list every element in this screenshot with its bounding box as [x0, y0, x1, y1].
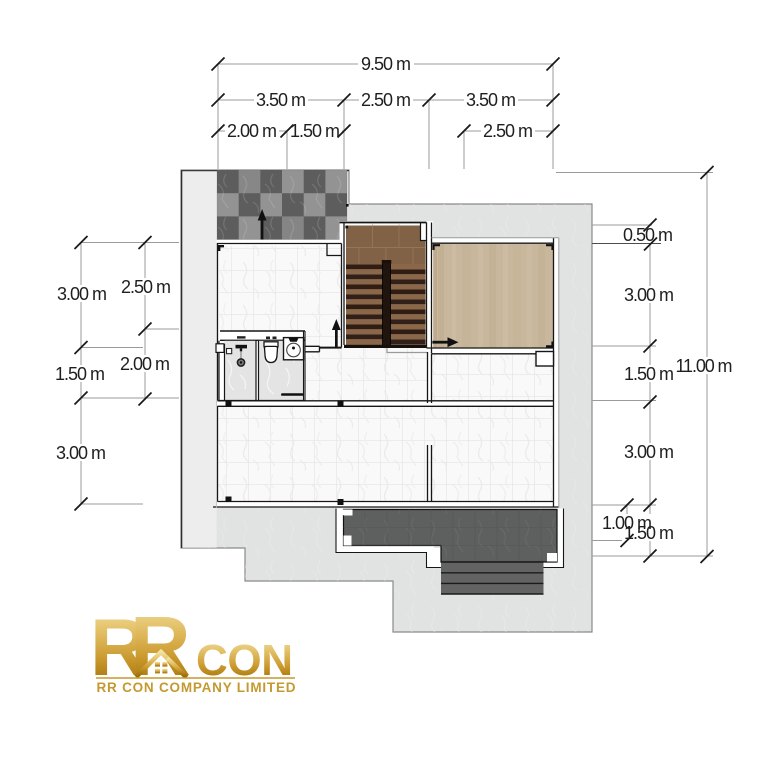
svg-text:RR CON COMPANY LIMITED: RR CON COMPANY LIMITED — [97, 680, 296, 695]
svg-text:1.50 m: 1.50 m — [624, 523, 674, 543]
svg-text:2.00 m: 2.00 m — [120, 354, 170, 374]
svg-text:11.00 m: 11.00 m — [676, 356, 733, 376]
svg-text:2.50 m: 2.50 m — [483, 121, 533, 141]
svg-text:3.50 m: 3.50 m — [256, 90, 306, 110]
svg-text:2.00 m: 2.00 m — [227, 121, 277, 141]
svg-text:9.50 m: 9.50 m — [361, 54, 411, 74]
svg-text:3.50 m: 3.50 m — [466, 90, 516, 110]
svg-text:0.50 m: 0.50 m — [623, 225, 673, 245]
svg-text:3.00 m: 3.00 m — [624, 285, 674, 305]
svg-text:3.00 m: 3.00 m — [57, 284, 107, 304]
svg-text:1.50 m: 1.50 m — [290, 121, 340, 141]
svg-text:2.50 m: 2.50 m — [121, 277, 171, 297]
svg-text:1.50 m: 1.50 m — [624, 364, 674, 384]
svg-text:2.50 m: 2.50 m — [361, 90, 411, 110]
svg-text:1.50 m: 1.50 m — [55, 364, 105, 384]
svg-text:3.00 m: 3.00 m — [624, 442, 674, 462]
svg-text:R: R — [130, 599, 191, 693]
svg-text:3.00 m: 3.00 m — [56, 443, 106, 463]
